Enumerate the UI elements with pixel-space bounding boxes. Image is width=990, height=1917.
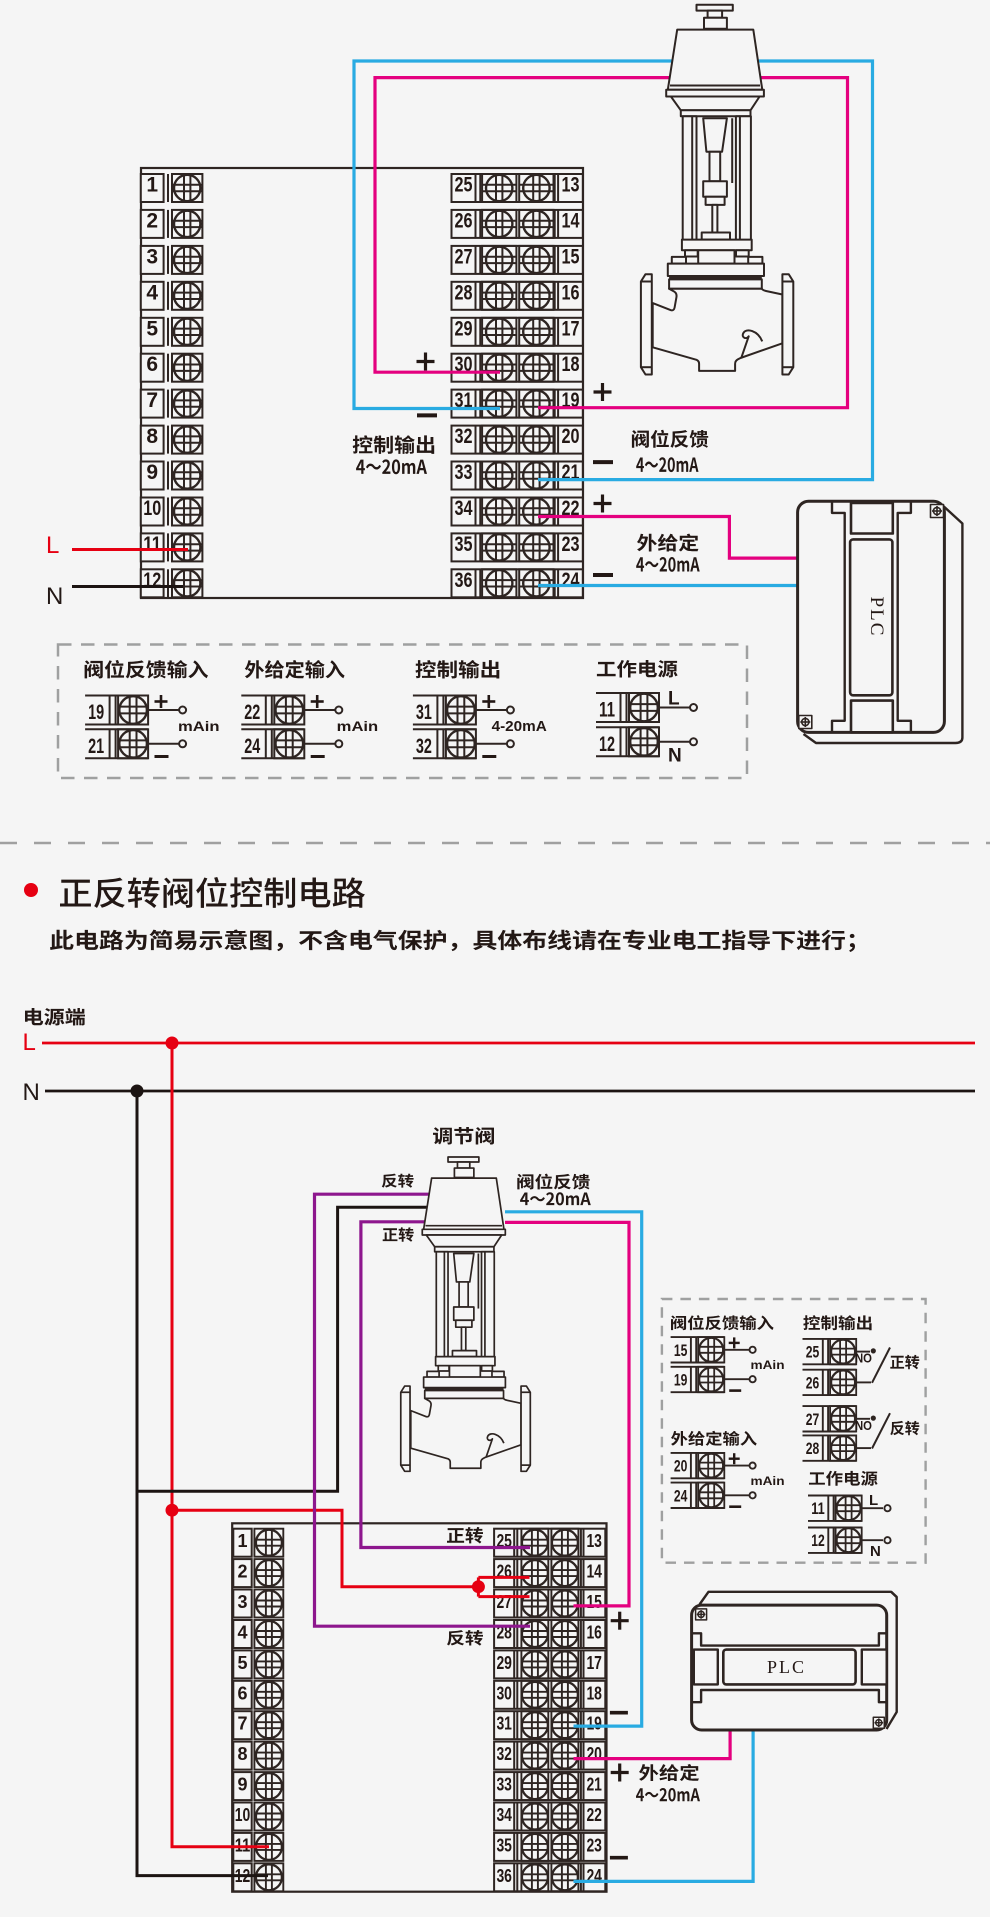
- svg-text:28: 28: [806, 1439, 820, 1458]
- svg-text:8: 8: [146, 425, 158, 448]
- svg-text:15: 15: [586, 1592, 602, 1612]
- svg-text:19: 19: [586, 1714, 602, 1734]
- svg-text:10: 10: [143, 497, 161, 520]
- svg-text:6: 6: [146, 353, 158, 376]
- svg-text:11: 11: [599, 699, 615, 722]
- svg-text:23: 23: [586, 1835, 602, 1855]
- svg-text:25: 25: [806, 1343, 820, 1362]
- svg-text:L: L: [23, 1029, 36, 1056]
- svg-text:20: 20: [562, 425, 580, 448]
- svg-text:22: 22: [586, 1805, 602, 1825]
- svg-text:7: 7: [237, 1714, 247, 1734]
- svg-text:33: 33: [455, 461, 473, 484]
- svg-text:18: 18: [562, 353, 580, 376]
- svg-text:NO: NO: [855, 1351, 872, 1366]
- svg-text:L: L: [668, 689, 680, 710]
- svg-text:NO: NO: [855, 1418, 872, 1433]
- svg-text:15: 15: [562, 245, 580, 268]
- svg-text:7: 7: [146, 389, 158, 412]
- svg-text:24: 24: [244, 735, 260, 758]
- svg-text:31: 31: [416, 701, 432, 724]
- svg-text:3: 3: [146, 245, 158, 268]
- svg-text:14: 14: [562, 209, 580, 232]
- svg-text:13: 13: [562, 174, 580, 197]
- svg-text:2: 2: [237, 1562, 247, 1582]
- svg-text:33: 33: [496, 1775, 512, 1795]
- svg-text:2: 2: [146, 209, 158, 232]
- svg-text:12: 12: [811, 1531, 825, 1550]
- svg-text:16: 16: [586, 1623, 602, 1643]
- svg-text:9: 9: [146, 461, 158, 484]
- svg-text:4: 4: [237, 1623, 247, 1643]
- svg-text:1: 1: [146, 174, 158, 197]
- svg-text:21: 21: [88, 735, 104, 758]
- svg-text:21: 21: [586, 1775, 602, 1795]
- svg-text:4: 4: [146, 281, 158, 304]
- svg-text:4-20mA: 4-20mA: [492, 718, 547, 735]
- svg-text:26: 26: [806, 1373, 820, 1392]
- svg-text:PLC: PLC: [866, 597, 887, 638]
- svg-text:12: 12: [143, 569, 161, 592]
- svg-text:36: 36: [496, 1866, 512, 1886]
- svg-text:11: 11: [811, 1499, 825, 1518]
- svg-text:5: 5: [237, 1653, 247, 1673]
- svg-text:25: 25: [455, 174, 473, 197]
- svg-text:27: 27: [455, 245, 473, 268]
- svg-text:N: N: [870, 1543, 881, 1560]
- svg-text:20: 20: [674, 1457, 688, 1476]
- svg-text:16: 16: [562, 281, 580, 304]
- svg-text:27: 27: [496, 1592, 512, 1612]
- svg-text:8: 8: [237, 1744, 247, 1764]
- svg-text:34: 34: [496, 1805, 512, 1825]
- svg-text:L: L: [869, 1492, 878, 1509]
- svg-text:26: 26: [455, 209, 473, 232]
- svg-text:24: 24: [562, 569, 580, 592]
- svg-text:mAin: mAin: [751, 1358, 785, 1372]
- svg-text:3: 3: [237, 1592, 247, 1612]
- svg-text:32: 32: [416, 735, 432, 758]
- svg-text:32: 32: [496, 1744, 512, 1764]
- svg-text:27: 27: [806, 1410, 820, 1429]
- svg-text:14: 14: [586, 1562, 602, 1582]
- svg-text:11: 11: [143, 533, 161, 556]
- svg-text:9: 9: [237, 1775, 247, 1795]
- svg-text:10: 10: [235, 1805, 251, 1825]
- svg-text:35: 35: [496, 1835, 512, 1855]
- svg-text:36: 36: [455, 569, 473, 592]
- svg-text:17: 17: [586, 1653, 602, 1673]
- svg-text:mAin: mAin: [751, 1474, 785, 1488]
- svg-text:18: 18: [586, 1683, 602, 1703]
- svg-text:28: 28: [455, 281, 473, 304]
- svg-text:L: L: [46, 532, 59, 559]
- svg-text:32: 32: [455, 425, 473, 448]
- svg-text:24: 24: [674, 1486, 688, 1505]
- svg-text:34: 34: [455, 497, 473, 520]
- svg-text:30: 30: [496, 1683, 512, 1703]
- svg-text:N: N: [46, 583, 63, 610]
- svg-text:N: N: [23, 1079, 40, 1106]
- svg-text:31: 31: [496, 1714, 512, 1734]
- svg-text:mAin: mAin: [337, 718, 379, 734]
- svg-text:5: 5: [146, 317, 158, 340]
- svg-text:PLC: PLC: [767, 1657, 806, 1677]
- svg-text:N: N: [668, 746, 682, 767]
- svg-text:15: 15: [674, 1341, 688, 1360]
- svg-text:19: 19: [674, 1371, 688, 1390]
- svg-text:20: 20: [586, 1744, 602, 1764]
- svg-text:35: 35: [455, 533, 473, 556]
- svg-text:29: 29: [496, 1653, 512, 1673]
- svg-text:13: 13: [586, 1531, 602, 1551]
- svg-text:17: 17: [562, 317, 580, 340]
- svg-text:12: 12: [599, 733, 615, 756]
- svg-text:mAin: mAin: [178, 718, 220, 734]
- svg-text:1: 1: [237, 1531, 247, 1551]
- svg-text:19: 19: [88, 701, 104, 724]
- svg-text:23: 23: [562, 533, 580, 556]
- svg-text:29: 29: [455, 317, 473, 340]
- svg-text:6: 6: [237, 1683, 247, 1703]
- svg-text:22: 22: [244, 701, 260, 724]
